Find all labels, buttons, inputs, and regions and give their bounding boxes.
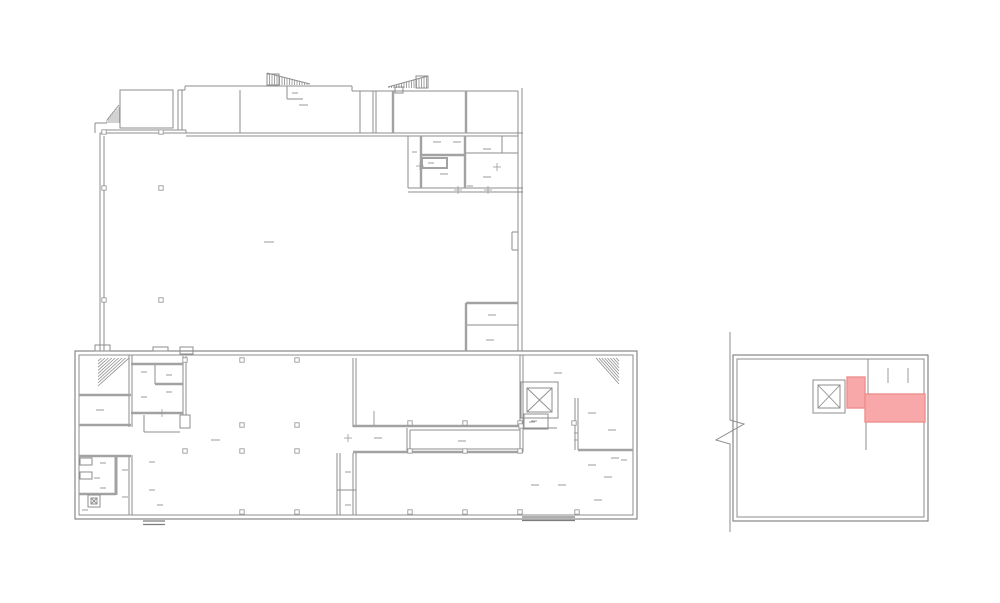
column-marker xyxy=(295,358,299,362)
column-marker xyxy=(408,421,412,425)
column-marker xyxy=(295,510,299,514)
highlighted-room[interactable] xyxy=(865,394,925,422)
cad-viewport xyxy=(0,0,1000,603)
column-marker xyxy=(240,358,244,362)
column-marker xyxy=(240,449,244,453)
column-marker xyxy=(575,510,579,514)
highlighted-room[interactable] xyxy=(847,377,865,408)
column-marker xyxy=(463,510,467,514)
column-marker xyxy=(240,423,244,427)
column-marker xyxy=(518,510,522,514)
column-marker xyxy=(295,423,299,427)
column-marker xyxy=(295,449,299,453)
column-marker xyxy=(408,449,412,453)
column-marker xyxy=(183,358,187,362)
column-marker xyxy=(463,421,467,425)
column-marker xyxy=(159,130,163,134)
column-marker xyxy=(183,449,187,453)
column-marker xyxy=(463,449,467,453)
column-marker xyxy=(102,130,106,134)
column-marker xyxy=(572,421,576,425)
column-marker xyxy=(102,186,106,190)
column-marker xyxy=(102,298,106,302)
floor-plan-canvas xyxy=(0,0,1000,603)
column-marker xyxy=(159,186,163,190)
column-marker xyxy=(408,510,412,514)
column-marker xyxy=(240,510,244,514)
elevator-shaft-icon xyxy=(813,380,845,413)
column-marker xyxy=(519,424,523,428)
column-marker xyxy=(159,298,163,302)
column-marker xyxy=(518,449,522,453)
